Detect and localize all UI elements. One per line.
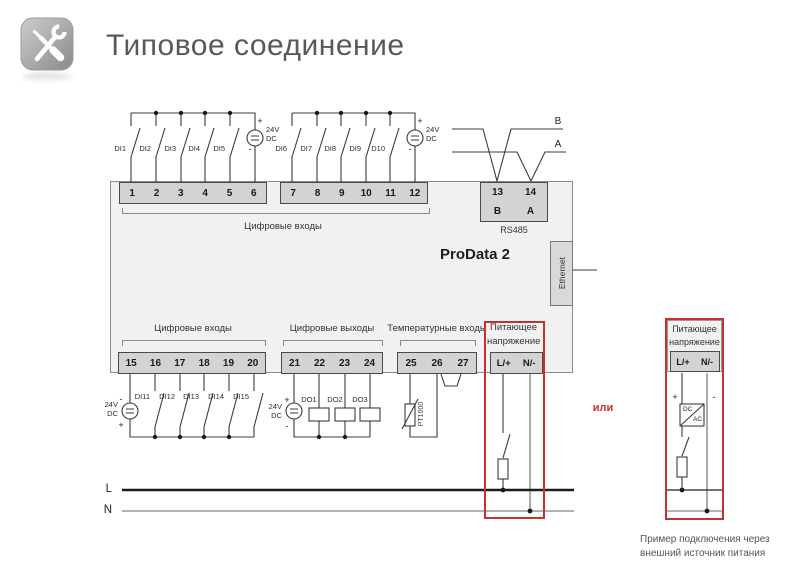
terminal-14-letter: A (514, 202, 547, 221)
do-group-wires (294, 374, 370, 437)
diagram-canvas: Типовое соединение 1 2 3 4 5 6 7 8 9 10 … (0, 0, 803, 575)
device-name: ProData 2 (425, 246, 525, 263)
source3-label: 24V DC (94, 401, 118, 418)
bracket-temperature-inputs (400, 340, 476, 346)
terminal-12: 12 (403, 183, 427, 203)
source3-type: DC (94, 410, 118, 419)
page-title: Типовое соединение (106, 29, 405, 63)
external-minus: - (710, 392, 718, 402)
terminal-26: 26 (424, 353, 450, 373)
label-di8: DI8 (312, 144, 336, 153)
terminal-block-7-12: 7 8 9 10 11 12 (280, 182, 428, 204)
source1-minus: - (246, 144, 254, 154)
terminal-4: 4 (193, 183, 217, 203)
external-supply-label-2: напряжение (663, 337, 726, 347)
terminal-8: 8 (305, 183, 329, 203)
terminal-block-1-6: 1 2 3 4 5 6 (119, 182, 267, 204)
source4-minus: - (283, 421, 291, 431)
terminal-16: 16 (143, 353, 167, 373)
external-terminal-n: N/- (695, 352, 719, 371)
source3-minus: - (117, 394, 125, 404)
terminal-n: N/- (517, 353, 543, 373)
label-do2: DO2 (323, 395, 347, 404)
converter-dc-label: DC (683, 406, 692, 413)
label-di10: D10 (361, 144, 385, 153)
external-plus: + (671, 392, 679, 402)
source2-type: DC (426, 135, 439, 144)
source2-minus: - (406, 144, 414, 154)
terminal-27: 27 (450, 353, 476, 373)
label-di12: DI12 (151, 392, 175, 401)
label-supply-1: Питающее (490, 322, 537, 333)
terminal-9: 9 (330, 183, 354, 203)
bracket-digital-outputs (283, 340, 383, 346)
label-di15: DI15 (225, 392, 249, 401)
ethernet-port: Ethernet (550, 241, 573, 306)
label-di1: DI1 (102, 144, 126, 153)
label-digital-inputs-top: Цифровые входы (183, 221, 383, 232)
terminal-block-power: L/+ N/- (490, 352, 543, 374)
label-di4: DI4 (176, 144, 200, 153)
icon-reflection (22, 73, 72, 82)
terminal-13: 13 (481, 183, 514, 202)
terminal-block-21-24: 21 22 23 24 (281, 352, 383, 374)
terminal-20: 20 (241, 353, 265, 373)
label-digital-inputs-bottom: Цифровые входы (123, 323, 263, 334)
terminal-17: 17 (168, 353, 192, 373)
source1-plus: + (256, 116, 264, 126)
terminal-13-letter: B (481, 202, 514, 221)
converter-ac-label: AC (693, 416, 702, 423)
source1-label: 24V DC (266, 126, 279, 143)
terminal-25: 25 (398, 353, 424, 373)
label-pt1000: PT1000 (418, 395, 428, 433)
source2-label: 24V DC (426, 126, 439, 143)
power-wires (503, 374, 510, 490)
terminal-5: 5 (217, 183, 241, 203)
or-label: или (589, 402, 617, 414)
tools-icon (20, 17, 74, 71)
terminal-24: 24 (357, 353, 382, 373)
bracket-digital-inputs-bottom (122, 340, 266, 346)
terminal-10: 10 (354, 183, 378, 203)
di-group3-wires (130, 374, 263, 437)
terminal-15: 15 (119, 353, 143, 373)
terminal-22: 22 (307, 353, 332, 373)
source4-label: 24V DC (258, 403, 282, 420)
fuse-icons (498, 457, 687, 479)
label-do3: DO3 (348, 395, 372, 404)
source1-type: DC (266, 135, 279, 144)
label-di6: DI6 (263, 144, 287, 153)
terminal-2: 2 (144, 183, 168, 203)
terminal-block-rs485: 13 14 B A (480, 182, 548, 222)
label-di13: DI13 (175, 392, 199, 401)
label-line-a: A (549, 139, 567, 150)
label-supply-2: напряжение (487, 336, 540, 347)
external-caption-2: внешний источник питания (640, 548, 765, 559)
label-di5: DI5 (201, 144, 225, 153)
label-di3: DI3 (152, 144, 176, 153)
rail-l-label: L (100, 483, 112, 495)
label-di7: DI7 (288, 144, 312, 153)
rs485-bus-wires (452, 129, 566, 181)
rail-n-label: N (100, 504, 112, 516)
terminal-6: 6 (242, 183, 266, 203)
external-supply-label-1: Питающее (665, 324, 724, 334)
terminal-l: L/+ (491, 353, 517, 373)
pt1000-sensor-icon (402, 399, 418, 429)
label-di2: DI2 (127, 144, 151, 153)
rs485-label: RS485 (480, 225, 548, 235)
label-do1: DO1 (297, 395, 321, 404)
terminal-14: 14 (514, 183, 547, 202)
label-temperature-inputs: Температурные входы (367, 323, 507, 334)
external-caption-1: Пример подключения через (640, 534, 770, 545)
terminal-21: 21 (282, 353, 307, 373)
terminal-block-25-27: 25 26 27 (397, 352, 477, 374)
terminal-3: 3 (169, 183, 193, 203)
do-load-icons (309, 408, 380, 421)
terminal-7: 7 (281, 183, 305, 203)
terminal-19: 19 (216, 353, 240, 373)
label-di11: DI11 (126, 392, 150, 401)
bracket-digital-inputs-top (122, 208, 430, 214)
external-terminal-l: L/+ (671, 352, 695, 371)
external-wires (682, 373, 689, 490)
source4-type: DC (258, 412, 282, 421)
source4-plus: + (283, 395, 291, 405)
source3-plus: + (117, 420, 125, 430)
label-di14: DI14 (200, 392, 224, 401)
ethernet-label: Ethernet (557, 257, 567, 289)
label-line-b: B (549, 116, 567, 127)
terminal-18: 18 (192, 353, 216, 373)
source2-plus: + (416, 116, 424, 126)
terminal-1: 1 (120, 183, 144, 203)
terminal-23: 23 (332, 353, 357, 373)
terminal-11: 11 (378, 183, 402, 203)
terminal-block-15-20: 15 16 17 18 19 20 (118, 352, 266, 374)
external-terminal-block: L/+ N/- (670, 351, 720, 372)
label-di9: DI9 (337, 144, 361, 153)
